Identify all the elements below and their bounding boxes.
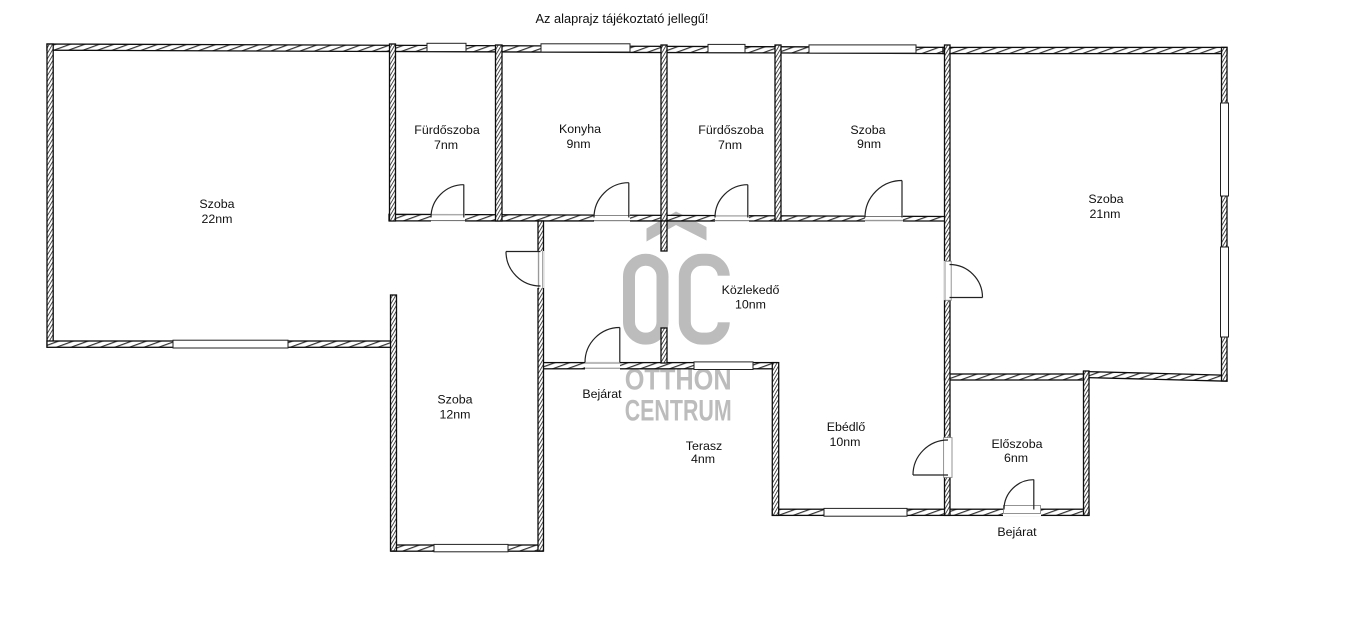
svg-text:22nm: 22nm	[202, 212, 233, 226]
svg-text:Szoba: Szoba	[437, 393, 472, 407]
svg-text:Terasz: Terasz	[686, 439, 723, 453]
svg-text:Fürdőszoba: Fürdőszoba	[414, 123, 480, 137]
svg-text:9nm: 9nm	[857, 137, 881, 151]
svg-text:6nm: 6nm	[1004, 451, 1028, 465]
svg-text:10nm: 10nm	[735, 298, 766, 312]
svg-text:7nm: 7nm	[718, 138, 742, 152]
svg-text:12nm: 12nm	[440, 408, 471, 422]
svg-text:10nm: 10nm	[830, 435, 861, 449]
svg-text:Szoba: Szoba	[850, 123, 885, 137]
svg-text:Fürdőszoba: Fürdőszoba	[698, 123, 764, 137]
svg-text:Szoba: Szoba	[199, 197, 234, 211]
svg-text:Bejárat: Bejárat	[997, 525, 1037, 539]
svg-text:Ebédlő: Ebédlő	[827, 420, 866, 434]
svg-text:Az alaprajz tájékoztató jelleg: Az alaprajz tájékoztató jellegű!	[536, 11, 709, 26]
svg-text:CENTRUM: CENTRUM	[625, 395, 732, 428]
svg-text:Konyha: Konyha	[559, 122, 601, 136]
svg-text:Közlekedő: Közlekedő	[722, 283, 780, 297]
svg-text:9nm: 9nm	[566, 137, 590, 151]
svg-text:Szoba: Szoba	[1088, 192, 1123, 206]
svg-text:Bejárat: Bejárat	[582, 387, 622, 401]
svg-text:21nm: 21nm	[1090, 207, 1121, 221]
svg-text:Előszoba: Előszoba	[992, 437, 1043, 451]
svg-text:7nm: 7nm	[434, 138, 458, 152]
svg-text:4nm: 4nm	[691, 452, 715, 466]
